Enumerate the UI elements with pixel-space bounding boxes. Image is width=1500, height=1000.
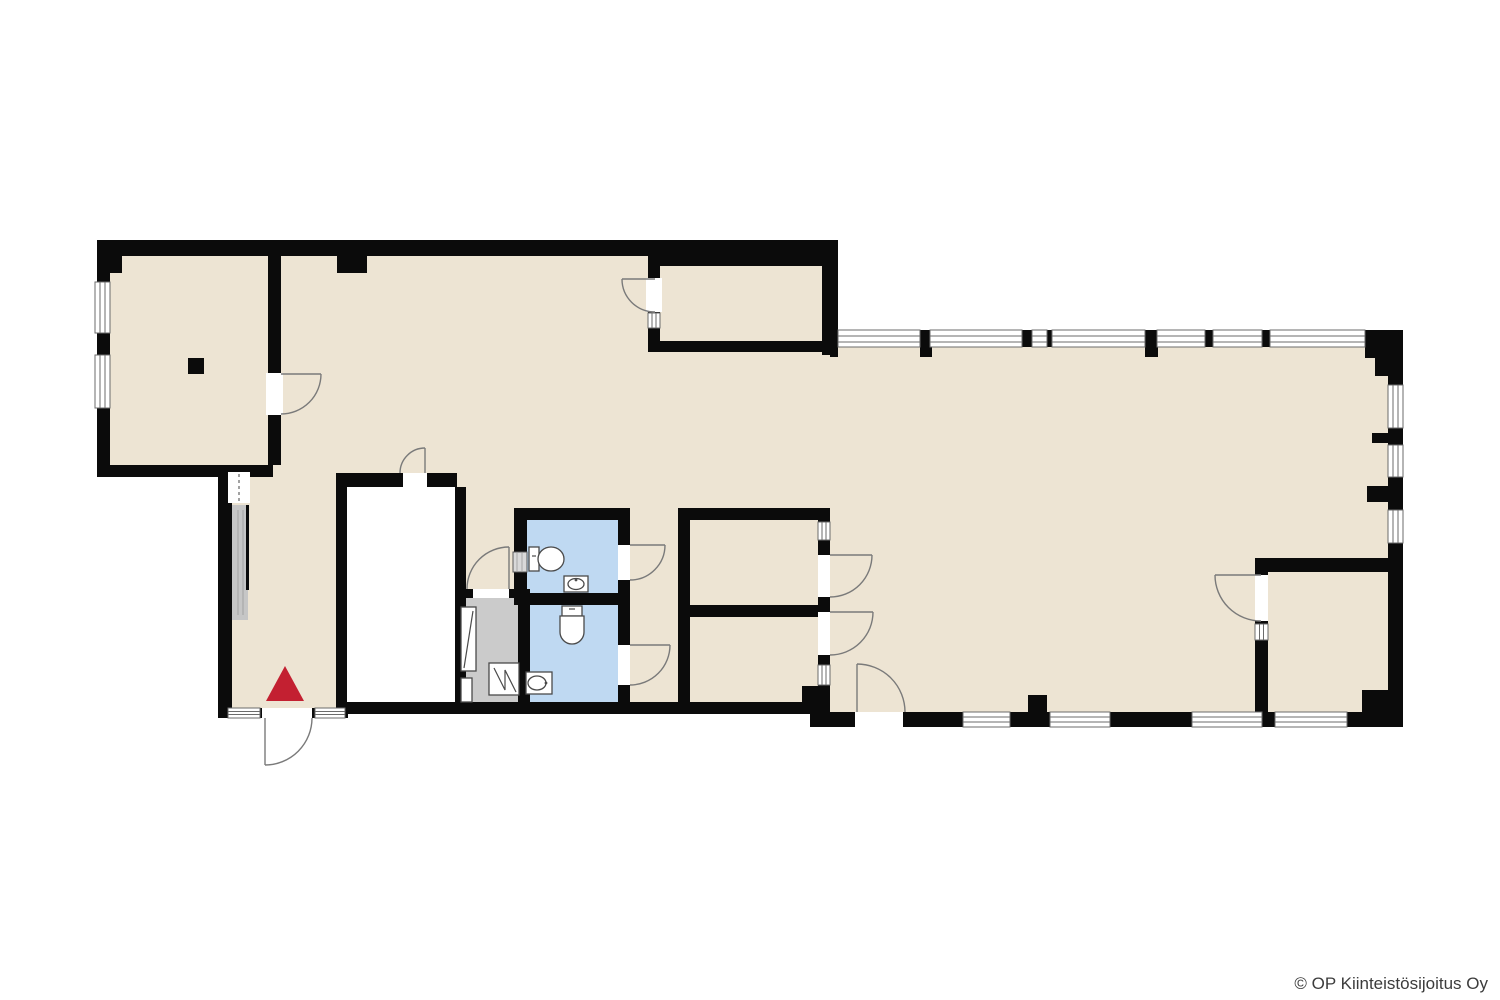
window bbox=[1032, 330, 1047, 347]
floor-areas bbox=[107, 253, 1388, 712]
toilet-icon bbox=[529, 547, 564, 571]
window bbox=[1388, 385, 1403, 428]
window bbox=[1255, 624, 1268, 640]
door-opening bbox=[646, 278, 662, 312]
window bbox=[818, 522, 830, 540]
sink-icon bbox=[526, 672, 552, 694]
duct-shaft bbox=[513, 552, 527, 572]
toilet-icon bbox=[560, 606, 584, 644]
window bbox=[930, 330, 1022, 347]
entrance-door-arc bbox=[265, 718, 312, 765]
floorplan-canvas: © OP Kiinteistösijoitus Oy bbox=[0, 0, 1500, 1000]
window bbox=[1192, 712, 1262, 727]
window bbox=[1270, 330, 1365, 347]
closet bbox=[232, 505, 249, 620]
window bbox=[1213, 330, 1262, 347]
door-opening bbox=[618, 645, 630, 685]
door-opening bbox=[618, 545, 630, 580]
door-opening bbox=[818, 555, 830, 597]
window bbox=[1157, 330, 1205, 347]
door-opening bbox=[262, 708, 312, 718]
column bbox=[188, 358, 204, 374]
door-opening bbox=[266, 373, 283, 415]
window bbox=[1388, 510, 1403, 543]
window bbox=[963, 712, 1010, 727]
sink-icon bbox=[564, 576, 588, 592]
door-opening bbox=[403, 473, 427, 487]
window bbox=[838, 330, 920, 347]
shower-icon bbox=[489, 663, 519, 695]
window bbox=[1050, 712, 1110, 727]
void-room bbox=[347, 487, 455, 702]
door-opening bbox=[473, 589, 509, 598]
window bbox=[1052, 330, 1145, 347]
window bbox=[1388, 445, 1403, 477]
window bbox=[95, 282, 110, 333]
copyright-text: © OP Kiinteistösijoitus Oy bbox=[1294, 974, 1488, 994]
window bbox=[818, 665, 830, 685]
window bbox=[315, 708, 345, 718]
window bbox=[1275, 712, 1347, 727]
window bbox=[228, 708, 260, 718]
window bbox=[95, 355, 110, 408]
door-opening bbox=[818, 612, 830, 655]
door-opening bbox=[855, 712, 903, 727]
window bbox=[648, 313, 660, 328]
door-opening bbox=[1255, 575, 1268, 621]
floorplan-svg bbox=[0, 0, 1500, 1000]
open-space-right-floor bbox=[830, 347, 1388, 712]
